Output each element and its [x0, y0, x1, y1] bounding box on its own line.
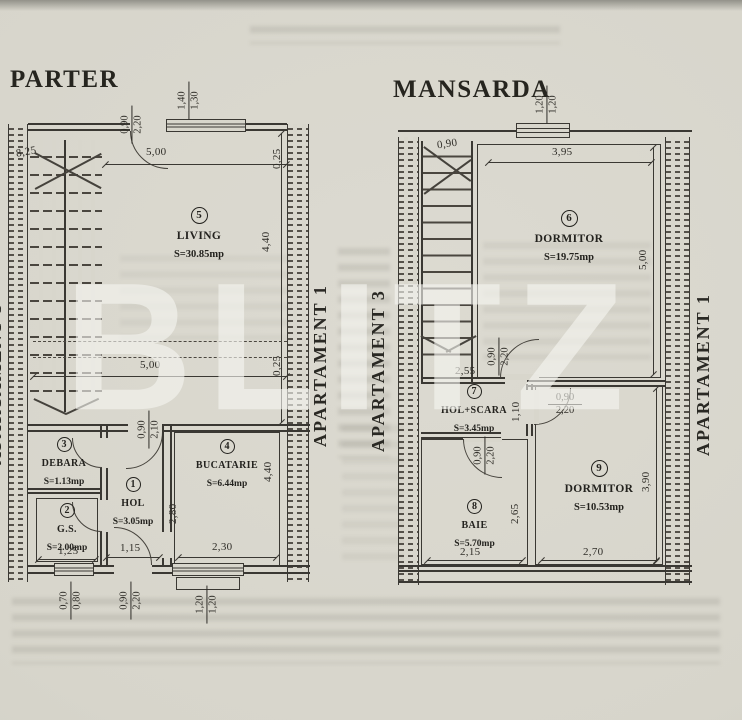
dim-living-width-top: 5,00	[146, 146, 166, 158]
party-wall-left	[8, 124, 28, 582]
dimension-line	[105, 164, 287, 165]
dimension-line	[656, 388, 657, 562]
room-number: 8	[467, 499, 482, 514]
apartment-label-right: APARTAMENT 1	[694, 266, 712, 456]
dimension-line	[653, 147, 654, 375]
dim-gs-window: 0,70 0,80	[58, 582, 83, 620]
agency-watermark: BLITZ	[64, 256, 638, 438]
dimension-line	[541, 560, 657, 561]
window	[516, 123, 570, 138]
room-label-hol: 1 HOL S=3.05mp	[104, 474, 162, 529]
wall-segment	[244, 565, 310, 574]
dim-bucatarie-height: 4,40	[263, 448, 274, 482]
dim-entry-door: 0,90 2,20	[118, 582, 143, 620]
room-number: 9	[591, 460, 608, 477]
wall-segment	[398, 565, 692, 572]
dim-bucatarie-width: 2,30	[212, 541, 232, 553]
dim-dorm9-width: 2,70	[583, 546, 603, 558]
room-number: 5	[191, 207, 208, 224]
dim-bucatarie-window: 1,20 1,20	[194, 586, 219, 624]
room-number: 2	[60, 503, 75, 518]
wall-segment	[28, 565, 54, 574]
window	[172, 563, 244, 576]
dim-dorm9-height: 3,90	[641, 460, 652, 492]
wall-segment	[94, 565, 114, 574]
dimension-line	[488, 162, 652, 163]
dimension-line	[178, 557, 277, 558]
party-wall-right	[665, 137, 690, 585]
photo-top-shadow	[0, 0, 742, 11]
dim-dorm6-width: 3,95	[552, 146, 572, 158]
wall-segment	[100, 532, 108, 567]
room-number: 1	[126, 477, 141, 492]
window	[54, 563, 94, 576]
bleed-through-text	[250, 26, 560, 44]
wall-segment	[244, 123, 287, 131]
dim-baie-width: 2,15	[460, 546, 480, 558]
apartment-label-left-partial: APARTAMENT 3	[0, 255, 4, 465]
dim-dorm6-height: 5,00	[638, 238, 649, 270]
room-number: 6	[561, 210, 578, 227]
dim-gs-width: 1,25	[58, 545, 78, 557]
dim-mansarda-window: 1,20 1,20	[534, 86, 559, 124]
dimension-line	[427, 560, 523, 561]
dim-door-top: 0,90 2,20	[119, 106, 144, 144]
mansarda-title: MANSARDA	[393, 76, 551, 104]
door-arc	[114, 527, 152, 565]
parter-title: PARTER	[10, 66, 119, 94]
wall-segment	[152, 565, 172, 574]
wall-segment	[398, 581, 692, 583]
window	[166, 119, 246, 132]
dim-baie-height: 2,65	[510, 492, 521, 524]
floor-plan-photo: PARTER APARTAMENT 3 APARTAMENT 1 1,40 1,…	[0, 0, 742, 720]
dim-window-top: 1,40 1,30	[176, 82, 201, 120]
wall-segment	[28, 123, 130, 131]
dimension-line	[38, 559, 96, 560]
